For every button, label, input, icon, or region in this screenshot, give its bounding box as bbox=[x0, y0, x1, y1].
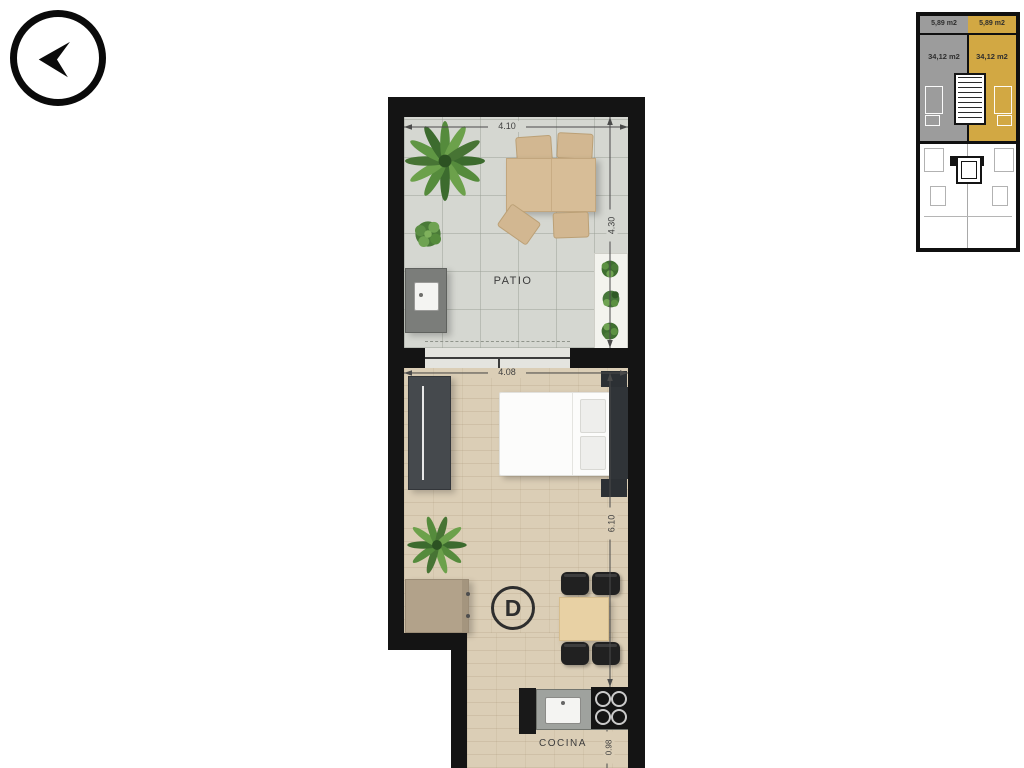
key-plan-balcony-line bbox=[924, 216, 1012, 217]
floor-plan: D 4.10 4.30 bbox=[385, 95, 645, 768]
wall-divider-right bbox=[570, 348, 628, 368]
unit-area-label-left: 34,12 m2 bbox=[920, 52, 968, 61]
patio-label: PATIO bbox=[485, 275, 541, 287]
unit-area-label-right: 34,12 m2 bbox=[968, 52, 1016, 61]
wall-divider-left bbox=[388, 348, 425, 368]
kitchen-label: COCINA bbox=[523, 738, 603, 749]
balcony-area-label-right: 5,89 m2 bbox=[968, 20, 1016, 27]
wall-left bbox=[388, 97, 404, 650]
back-button[interactable] bbox=[10, 10, 106, 106]
key-plan-furniture-outline bbox=[925, 115, 940, 126]
dimension-room-width: 4.08 bbox=[488, 367, 526, 378]
key-plan-elevator bbox=[956, 156, 982, 184]
wall-notch-vertical bbox=[451, 633, 467, 768]
key-plan-furniture-outline bbox=[930, 186, 946, 206]
wall-right bbox=[628, 97, 645, 768]
dimension-patio-depth: 4.30 bbox=[607, 210, 618, 242]
key-plan-furniture-outline bbox=[997, 115, 1012, 126]
key-plan: 5,89 m2 5,89 m2 34,12 m2 34,12 m2 bbox=[916, 12, 1020, 252]
key-plan-stairs bbox=[954, 73, 986, 125]
key-plan-furniture-outline bbox=[994, 86, 1012, 114]
key-plan-furniture-outline bbox=[992, 186, 1008, 206]
dimension-kitchen-width: 0.98 bbox=[604, 732, 615, 764]
unit-letter: D bbox=[505, 595, 522, 622]
dimension-lines bbox=[385, 95, 645, 768]
dimension-patio-width: 4.10 bbox=[488, 121, 526, 132]
unit-letter-badge: D bbox=[491, 586, 535, 630]
wall-top bbox=[388, 97, 645, 117]
dimension-room-depth: 6.10 bbox=[607, 508, 618, 540]
key-plan-mid-wall bbox=[920, 141, 1016, 144]
key-plan-bathroom-outline bbox=[994, 148, 1014, 172]
back-arrow-icon bbox=[32, 32, 84, 84]
balcony-area-label-left: 5,89 m2 bbox=[920, 20, 968, 27]
door-tick bbox=[498, 358, 500, 368]
key-plan-furniture-outline bbox=[925, 86, 943, 114]
key-plan-bathroom-outline bbox=[924, 148, 944, 172]
sliding-door bbox=[425, 348, 570, 368]
